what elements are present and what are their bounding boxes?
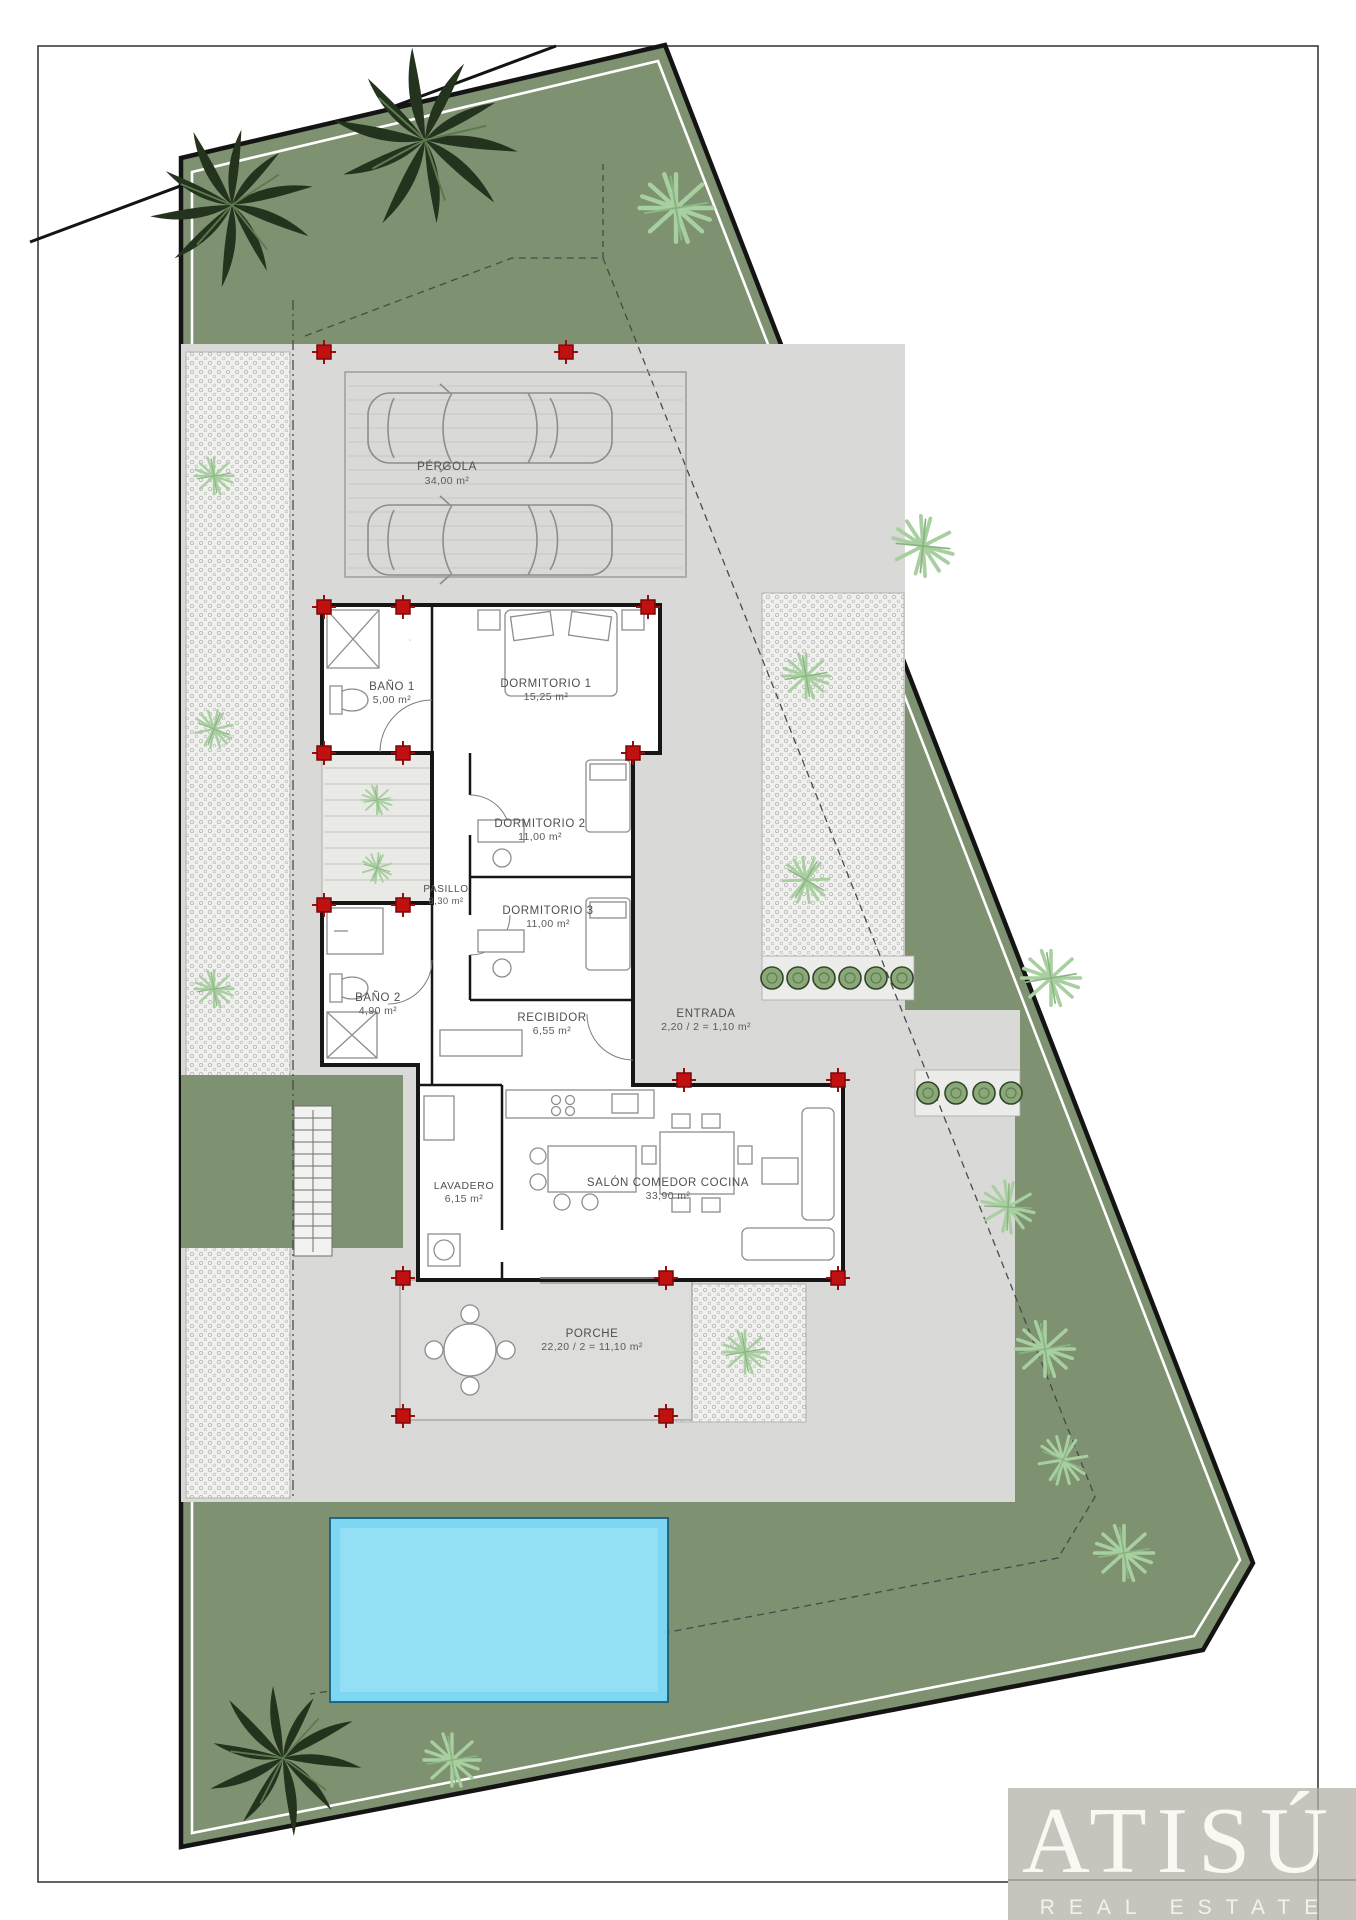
plant-icon [1016,1322,1075,1377]
room-label-dormitorio2: DORMITORIO 2 [494,818,585,830]
plant-icon [1022,951,1081,1006]
room-label-recibidor: RECIBIDOR [517,1012,586,1024]
sideboard-icon [440,1030,522,1056]
room-label-porche: PORCHE [566,1328,619,1340]
chair-icon [493,959,511,977]
sofa-icon [802,1108,834,1220]
room-label-bano2: BAÑO 2 [355,991,401,1004]
room-area-recibidor: 6,55 m² [533,1025,571,1037]
logo-box: ATISÚ REAL ESTATE [1008,1788,1356,1920]
chair-icon [493,849,511,867]
plant-icon [194,458,233,494]
left-planter-strip [186,352,290,1498]
room-area-porche: 22,20 / 2 = 11,10 m² [541,1341,643,1353]
plant-icon [640,174,713,242]
swimming-pool [330,1518,668,1702]
plant-icon [194,971,233,1007]
room-area-pasillo: 8,30 m² [428,896,463,907]
room-label-entrada: ENTRADA [676,1008,735,1020]
plant-icon [782,654,830,698]
plant-icon [1095,1526,1154,1581]
brand-tagline: REAL ESTATE [1040,1896,1332,1919]
plant-icon [723,1331,768,1373]
laundry-counter-icon [424,1096,454,1140]
room-area-bano1: 5,00 m² [373,694,411,706]
room-area-dormitorio1: 15,25 m² [524,691,569,703]
plant-icon [362,786,393,815]
room-area-entrada: 2,20 / 2 = 1,10 m² [661,1021,751,1033]
room-label-dormitorio1: DORMITORIO 1 [500,678,591,690]
desk-icon [478,930,524,952]
plant-icon [424,1734,480,1786]
round-table-icon [444,1324,496,1376]
room-area-pergola: 34,00 m² [425,475,470,487]
room-label-pergola: PÉRGOLA [417,460,477,473]
room-area-lavadero: 6,15 m² [445,1193,483,1205]
brand-name: ATISÚ [1022,1789,1338,1893]
room-label-dormitorio3: DORMITORIO 3 [502,905,593,917]
room-area-salon: 33,90 m² [646,1190,691,1202]
coffee-table-icon [762,1158,798,1184]
room-area-bano2: 4,90 m² [359,1005,397,1017]
sofa-icon [742,1228,834,1260]
room-area-dormitorio2: 11,00 m² [518,831,562,843]
site-plan-svg: PÉRGOLA 34,00 m² BAÑO 1 5,00 m² DORMITOR… [0,0,1356,1920]
right-planter-bed [762,593,904,957]
room-area-dormitorio3: 11,00 m² [526,918,570,930]
floor-plan-page: PÉRGOLA 34,00 m² BAÑO 1 5,00 m² DORMITOR… [0,0,1356,1920]
room-label-lavadero: LAVADERO [434,1180,494,1192]
room-label-salon: SALÓN COMEDOR COCINA [587,1176,749,1189]
room-label-pasillo: PASILLO [423,884,468,895]
room-label-bano1: BAÑO 1 [369,680,415,693]
left-garden-pocket [181,1075,403,1248]
stairs [294,1106,332,1256]
